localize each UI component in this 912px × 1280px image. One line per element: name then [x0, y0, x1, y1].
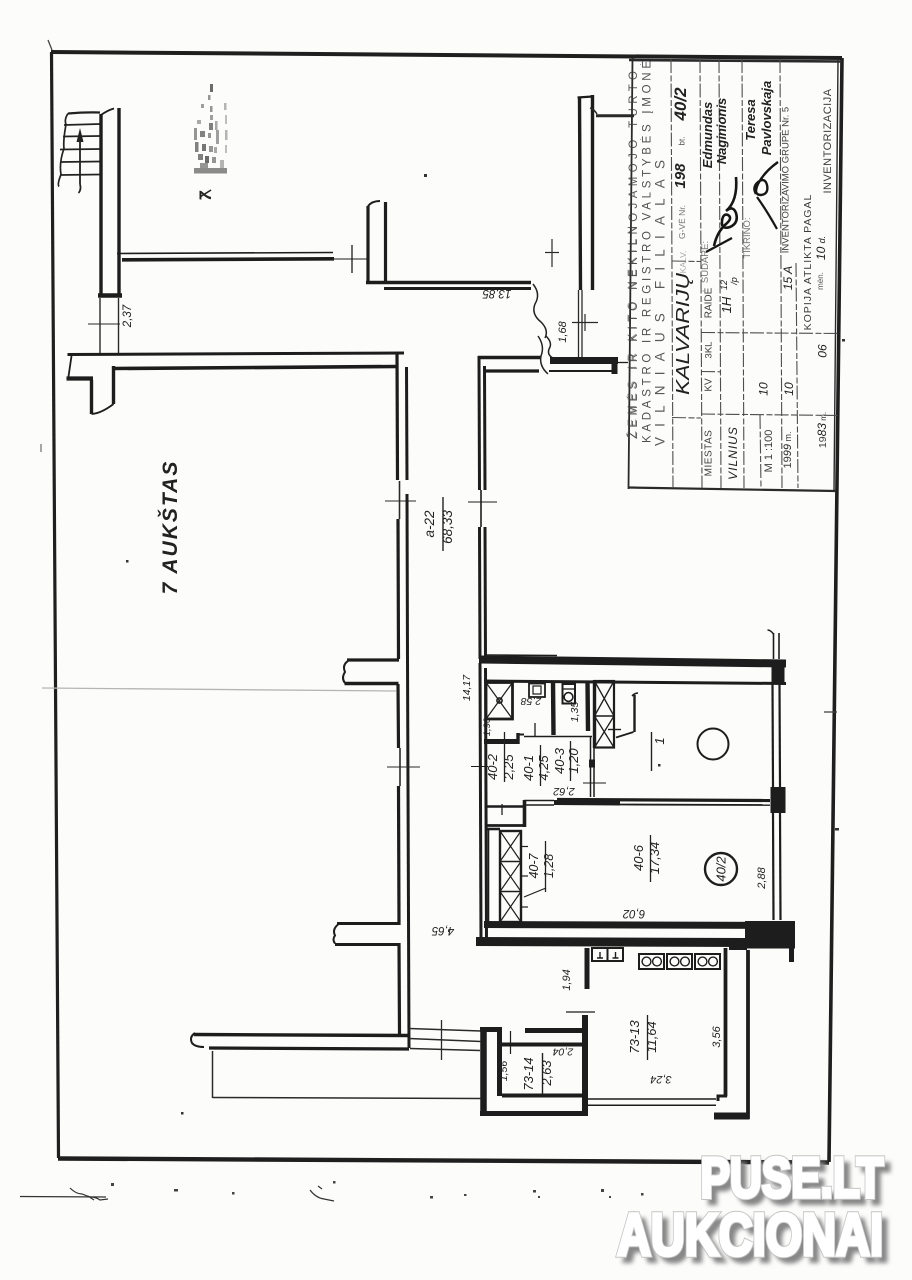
- svg-text:AUKCIONAI: AUKCIONAI: [617, 1202, 883, 1268]
- svg-text:1,68: 1,68: [557, 320, 569, 342]
- svg-text:4,25: 4,25: [536, 755, 551, 781]
- svg-text:2,25: 2,25: [501, 754, 516, 781]
- svg-text:KALV.: KALV.: [678, 251, 688, 274]
- svg-text:1,90: 1,90: [482, 717, 493, 736]
- svg-text:Pavlovskaja: Pavlovskaja: [759, 81, 774, 155]
- svg-text:1H: 1H: [719, 296, 734, 313]
- svg-text:INVENTORIZACIJA: INVENTORIZACIJA: [822, 88, 834, 193]
- svg-text:40-7: 40-7: [527, 852, 541, 878]
- svg-text:40-1: 40-1: [521, 755, 536, 781]
- svg-text:2.58: 2.58: [521, 695, 543, 707]
- svg-text:1: 1: [652, 737, 667, 744]
- svg-text:VILNIAUS FILIALAS: VILNIAUS FILIALAS: [653, 158, 668, 446]
- svg-text:7: 7: [196, 190, 215, 201]
- svg-text:1,56: 1,56: [498, 1061, 510, 1082]
- svg-text:2,62: 2,62: [553, 785, 575, 797]
- svg-text:11,64: 11,64: [644, 1021, 659, 1053]
- svg-text:a-22: a-22: [422, 510, 437, 538]
- svg-text:10: 10: [757, 382, 771, 396]
- svg-text:KALVARIJŲ: KALVARIJŲ: [673, 272, 693, 395]
- svg-text:RAIDĖ: RAIDĖ: [702, 287, 715, 318]
- svg-text:2,63: 2,63: [539, 1060, 554, 1087]
- svg-text:G-VĖ Nr.: G-VĖ Nr.: [677, 205, 687, 239]
- svg-text:3,24: 3,24: [650, 1073, 671, 1085]
- svg-text:Edmundas: Edmundas: [700, 102, 715, 168]
- svg-text:1,20: 1,20: [566, 748, 581, 774]
- svg-text:198: 198: [672, 163, 689, 189]
- svg-text:14,17: 14,17: [461, 674, 473, 701]
- svg-text:1,28: 1,28: [542, 854, 556, 878]
- svg-text:INVENTORIZAVIMO GRUPĖ Nr. 5: INVENTORIZAVIMO GRUPĖ Nr. 5: [781, 107, 792, 253]
- svg-text:17,34: 17,34: [647, 842, 662, 875]
- svg-text:bt.: bt.: [678, 137, 687, 146]
- svg-text:15 A: 15 A: [781, 266, 795, 290]
- svg-text:10 d.: 10 d.: [814, 236, 828, 260]
- svg-text:KV: KV: [704, 378, 715, 392]
- svg-text:1,35: 1,35: [569, 702, 581, 723]
- svg-text:1999 m.: 1999 m.: [782, 432, 794, 469]
- svg-text:2,88: 2,88: [756, 866, 768, 889]
- svg-text:1983 m.: 1983 m.: [815, 412, 829, 448]
- svg-text:12: 12: [719, 280, 729, 290]
- svg-text:Teresa: Teresa: [743, 99, 758, 140]
- svg-text:2,04: 2,04: [553, 1046, 575, 1058]
- svg-text:6,02: 6,02: [622, 907, 645, 919]
- svg-text:SUDARĖ:: SUDARĖ:: [700, 241, 711, 283]
- svg-text:VILNIUS: VILNIUS: [726, 426, 740, 480]
- svg-text:06: 06: [816, 344, 830, 358]
- svg-text:40/2: 40/2: [671, 87, 690, 122]
- svg-text:/p: /p: [729, 277, 739, 286]
- svg-text:3KL: 3KL: [704, 342, 715, 359]
- svg-text:7 AUKŠTAS: 7 AUKŠTAS: [158, 460, 182, 595]
- svg-text:PUSE.LT: PUSE.LT: [701, 1146, 884, 1210]
- svg-text:40/2: 40/2: [714, 856, 729, 882]
- svg-text:40-2: 40-2: [485, 753, 500, 780]
- svg-text:ŽEMĖS IR KITO NEKILN: ŽEMĖS IR KITO NEKILN: [626, 226, 639, 438]
- svg-text:MIESTAS: MIESTAS: [704, 430, 715, 477]
- svg-text:1,94: 1,94: [561, 969, 573, 990]
- svg-text:3,56: 3,56: [711, 1025, 723, 1047]
- svg-text:Naginionis: Naginionis: [714, 98, 729, 164]
- svg-text:68,33: 68,33: [440, 510, 455, 544]
- svg-text:40-6: 40-6: [631, 844, 646, 871]
- svg-text:40-3: 40-3: [552, 747, 567, 774]
- svg-text:4,65: 4,65: [431, 924, 454, 936]
- svg-text:mėn.: mėn.: [816, 272, 825, 290]
- svg-text:73-14: 73-14: [521, 1057, 536, 1090]
- svg-text:KOPIJA ATLIKTA PAGAL: KOPIJA ATLIKTA PAGAL: [802, 194, 814, 331]
- svg-text:73-13: 73-13: [627, 1020, 642, 1054]
- svg-text:TIKRINO:: TIKRINO:: [742, 217, 753, 258]
- svg-text:2,37: 2,37: [122, 304, 134, 328]
- svg-text:10: 10: [782, 382, 796, 396]
- svg-text:M 1 :100: M 1 :100: [763, 430, 775, 473]
